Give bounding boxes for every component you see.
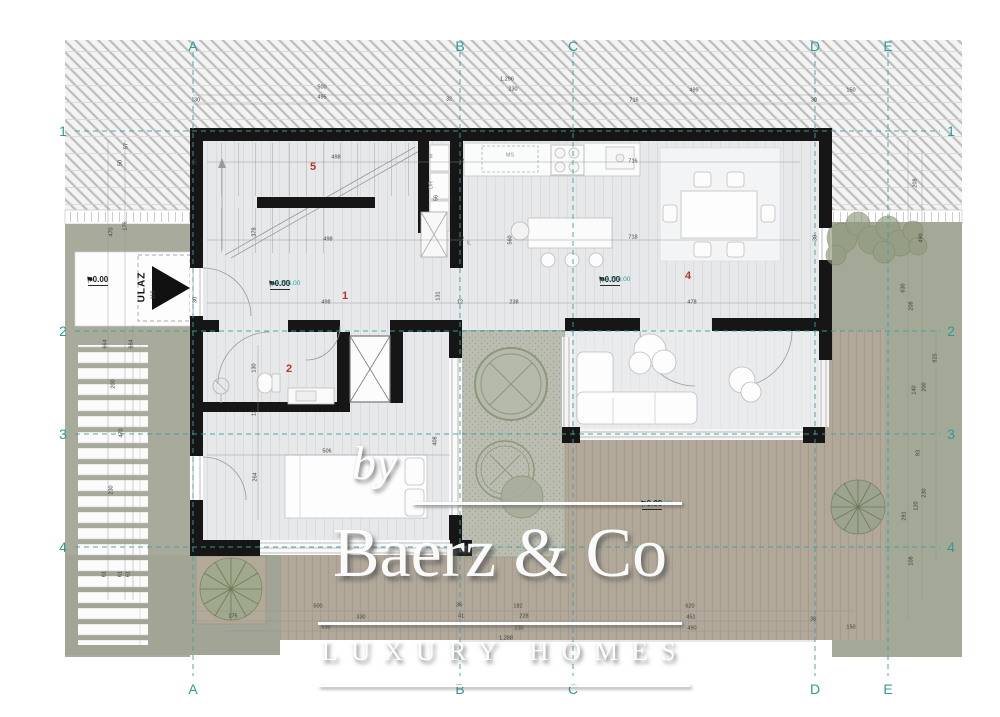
dimension-label: 57 [124, 143, 130, 149]
room-number: 1 [342, 290, 348, 302]
dimension-label: 490 [687, 626, 696, 632]
dimension-label: 12 [458, 237, 464, 243]
entrance-label: ULAZ [137, 272, 148, 303]
dimension-label: 12 [458, 159, 464, 165]
dimension-label: 499 [689, 88, 698, 94]
dimension-label: 230 [922, 488, 928, 497]
dimension-label: 264 [253, 472, 259, 481]
dimension-label: 500 [317, 85, 326, 91]
dimension-label: 495 [317, 95, 326, 101]
grid-column-label-top: A [188, 38, 197, 54]
grid-column-label-bottom: B [455, 681, 464, 697]
dimension-label: 110 [151, 291, 157, 300]
room-number: 5 [310, 161, 316, 173]
dimension-label: 500 [313, 604, 322, 610]
dimension-label: 716 [629, 98, 638, 104]
elevation-datum: a.k.216.00 [270, 280, 300, 288]
dimension-label: 291 [902, 511, 908, 520]
grid-column-label-bottom: C [568, 681, 578, 697]
dimension-label: 925 [933, 353, 939, 362]
fixture-label: W [429, 153, 435, 158]
dimension-label: 560 [508, 235, 514, 244]
grid-row-label-right: 1 [947, 123, 955, 139]
dimension-label: 32 [446, 97, 452, 103]
dimension-label: 451 [686, 615, 695, 621]
dimension-label: 238 [509, 300, 518, 306]
room-number: 2 [286, 363, 292, 375]
dimension-label: 108 [909, 556, 915, 565]
grid-row-label-left: 4 [59, 539, 67, 555]
grid-row-label-right: 3 [947, 426, 955, 442]
dimension-label: 470 [109, 227, 115, 236]
dimension-label: 176 [123, 221, 129, 230]
dimension-label: 30 [193, 159, 199, 165]
dimension-label: 41 [458, 614, 464, 620]
dimension-label: 208 [913, 178, 919, 187]
plan-annotations: AABBCCDDEE1122334451241,2962305004953032… [0, 0, 1000, 717]
dimension-label: 506 [322, 449, 331, 455]
elevation-datum: a.k.216.00 [642, 500, 672, 508]
dimension-label: 200 [111, 379, 117, 388]
dimension-label: 50 [118, 160, 124, 166]
elevation-value: +0.00 [88, 276, 108, 286]
dimension-label: 470 [119, 428, 125, 437]
dimension-label: 182 [513, 604, 522, 610]
dimension-label: 230 [109, 485, 115, 494]
dimension-label: 208 [909, 301, 915, 310]
dimension-label: 490 [919, 233, 925, 242]
dimension-label: 30 [193, 297, 199, 303]
floor-plan-sheet: AABBCCDDEE1122334451241,2962305004953032… [0, 0, 1000, 717]
grid-row-label-left: 1 [59, 123, 67, 139]
dimension-label: 230 [514, 626, 523, 632]
dimension-label: 150 [846, 625, 855, 631]
dimension-label: 1,296 [500, 77, 514, 83]
fixture-label: DR [429, 181, 435, 189]
dimension-label: 61 [118, 571, 124, 577]
dimension-label: 498 [323, 237, 332, 243]
dimension-label: 36 [456, 603, 462, 609]
dimension-label: 56 [434, 195, 440, 201]
dimension-label: 630 [901, 283, 907, 292]
dimension-label: 130 [252, 363, 258, 372]
dimension-label: 140 [912, 385, 918, 394]
dimension-label: 61 [126, 571, 132, 577]
dimension-label: 38 [810, 617, 816, 623]
dimension-label: 131 [436, 291, 442, 300]
dimension-label: 478 [687, 300, 696, 306]
dimension-label: 1,288 [499, 636, 513, 642]
grid-row-label-left: 3 [59, 426, 67, 442]
fixture-label: MS [506, 153, 514, 159]
dimension-label: 330 [356, 615, 365, 621]
dimension-label: 61 [102, 571, 108, 577]
dimension-label: 150 [846, 88, 855, 94]
grid-column-label-bottom: D [810, 681, 820, 697]
dimension-label: 378 [252, 227, 258, 236]
grid-row-label-right: 2 [947, 323, 955, 339]
dimension-label: 498 [331, 155, 340, 161]
dimension-label: 30 [811, 98, 817, 104]
dimension-label: 175 [228, 614, 237, 620]
dimension-label: 120 [914, 501, 920, 510]
dimension-label: 718 [628, 235, 637, 241]
dimension-label: 30 [194, 98, 200, 104]
grid-column-label-top: C [568, 38, 578, 54]
grid-row-label-left: 2 [59, 323, 67, 339]
dimension-label: 530 [321, 625, 330, 631]
grid-column-label-bottom: E [883, 681, 892, 697]
room-number: 4 [685, 270, 691, 282]
fixture-label: IL [467, 241, 472, 247]
dimension-label: 664 [103, 339, 109, 348]
dimension-label: 200 [922, 382, 928, 391]
dimension-label: 716 [628, 159, 637, 165]
dimension-label: 12 [457, 300, 463, 306]
dimension-label: 230 [508, 87, 517, 93]
dimension-label: 12 [252, 410, 258, 416]
grid-row-label-right: 4 [947, 539, 955, 555]
dimension-label: 228 [519, 614, 528, 620]
dimension-label: 93 [916, 450, 922, 456]
grid-column-label-top: B [455, 38, 464, 54]
dimension-label: 408 [433, 436, 439, 445]
grid-column-label-top: E [883, 38, 892, 54]
dimension-label: 664 [129, 339, 135, 348]
dimension-label: 30 [813, 235, 819, 241]
grid-column-label-bottom: A [188, 681, 197, 697]
grid-column-label-top: D [810, 38, 820, 54]
dimension-label: 498 [321, 300, 330, 306]
dimension-label: 620 [685, 604, 694, 610]
elevation-datum: a.k.216.00 [600, 276, 630, 284]
